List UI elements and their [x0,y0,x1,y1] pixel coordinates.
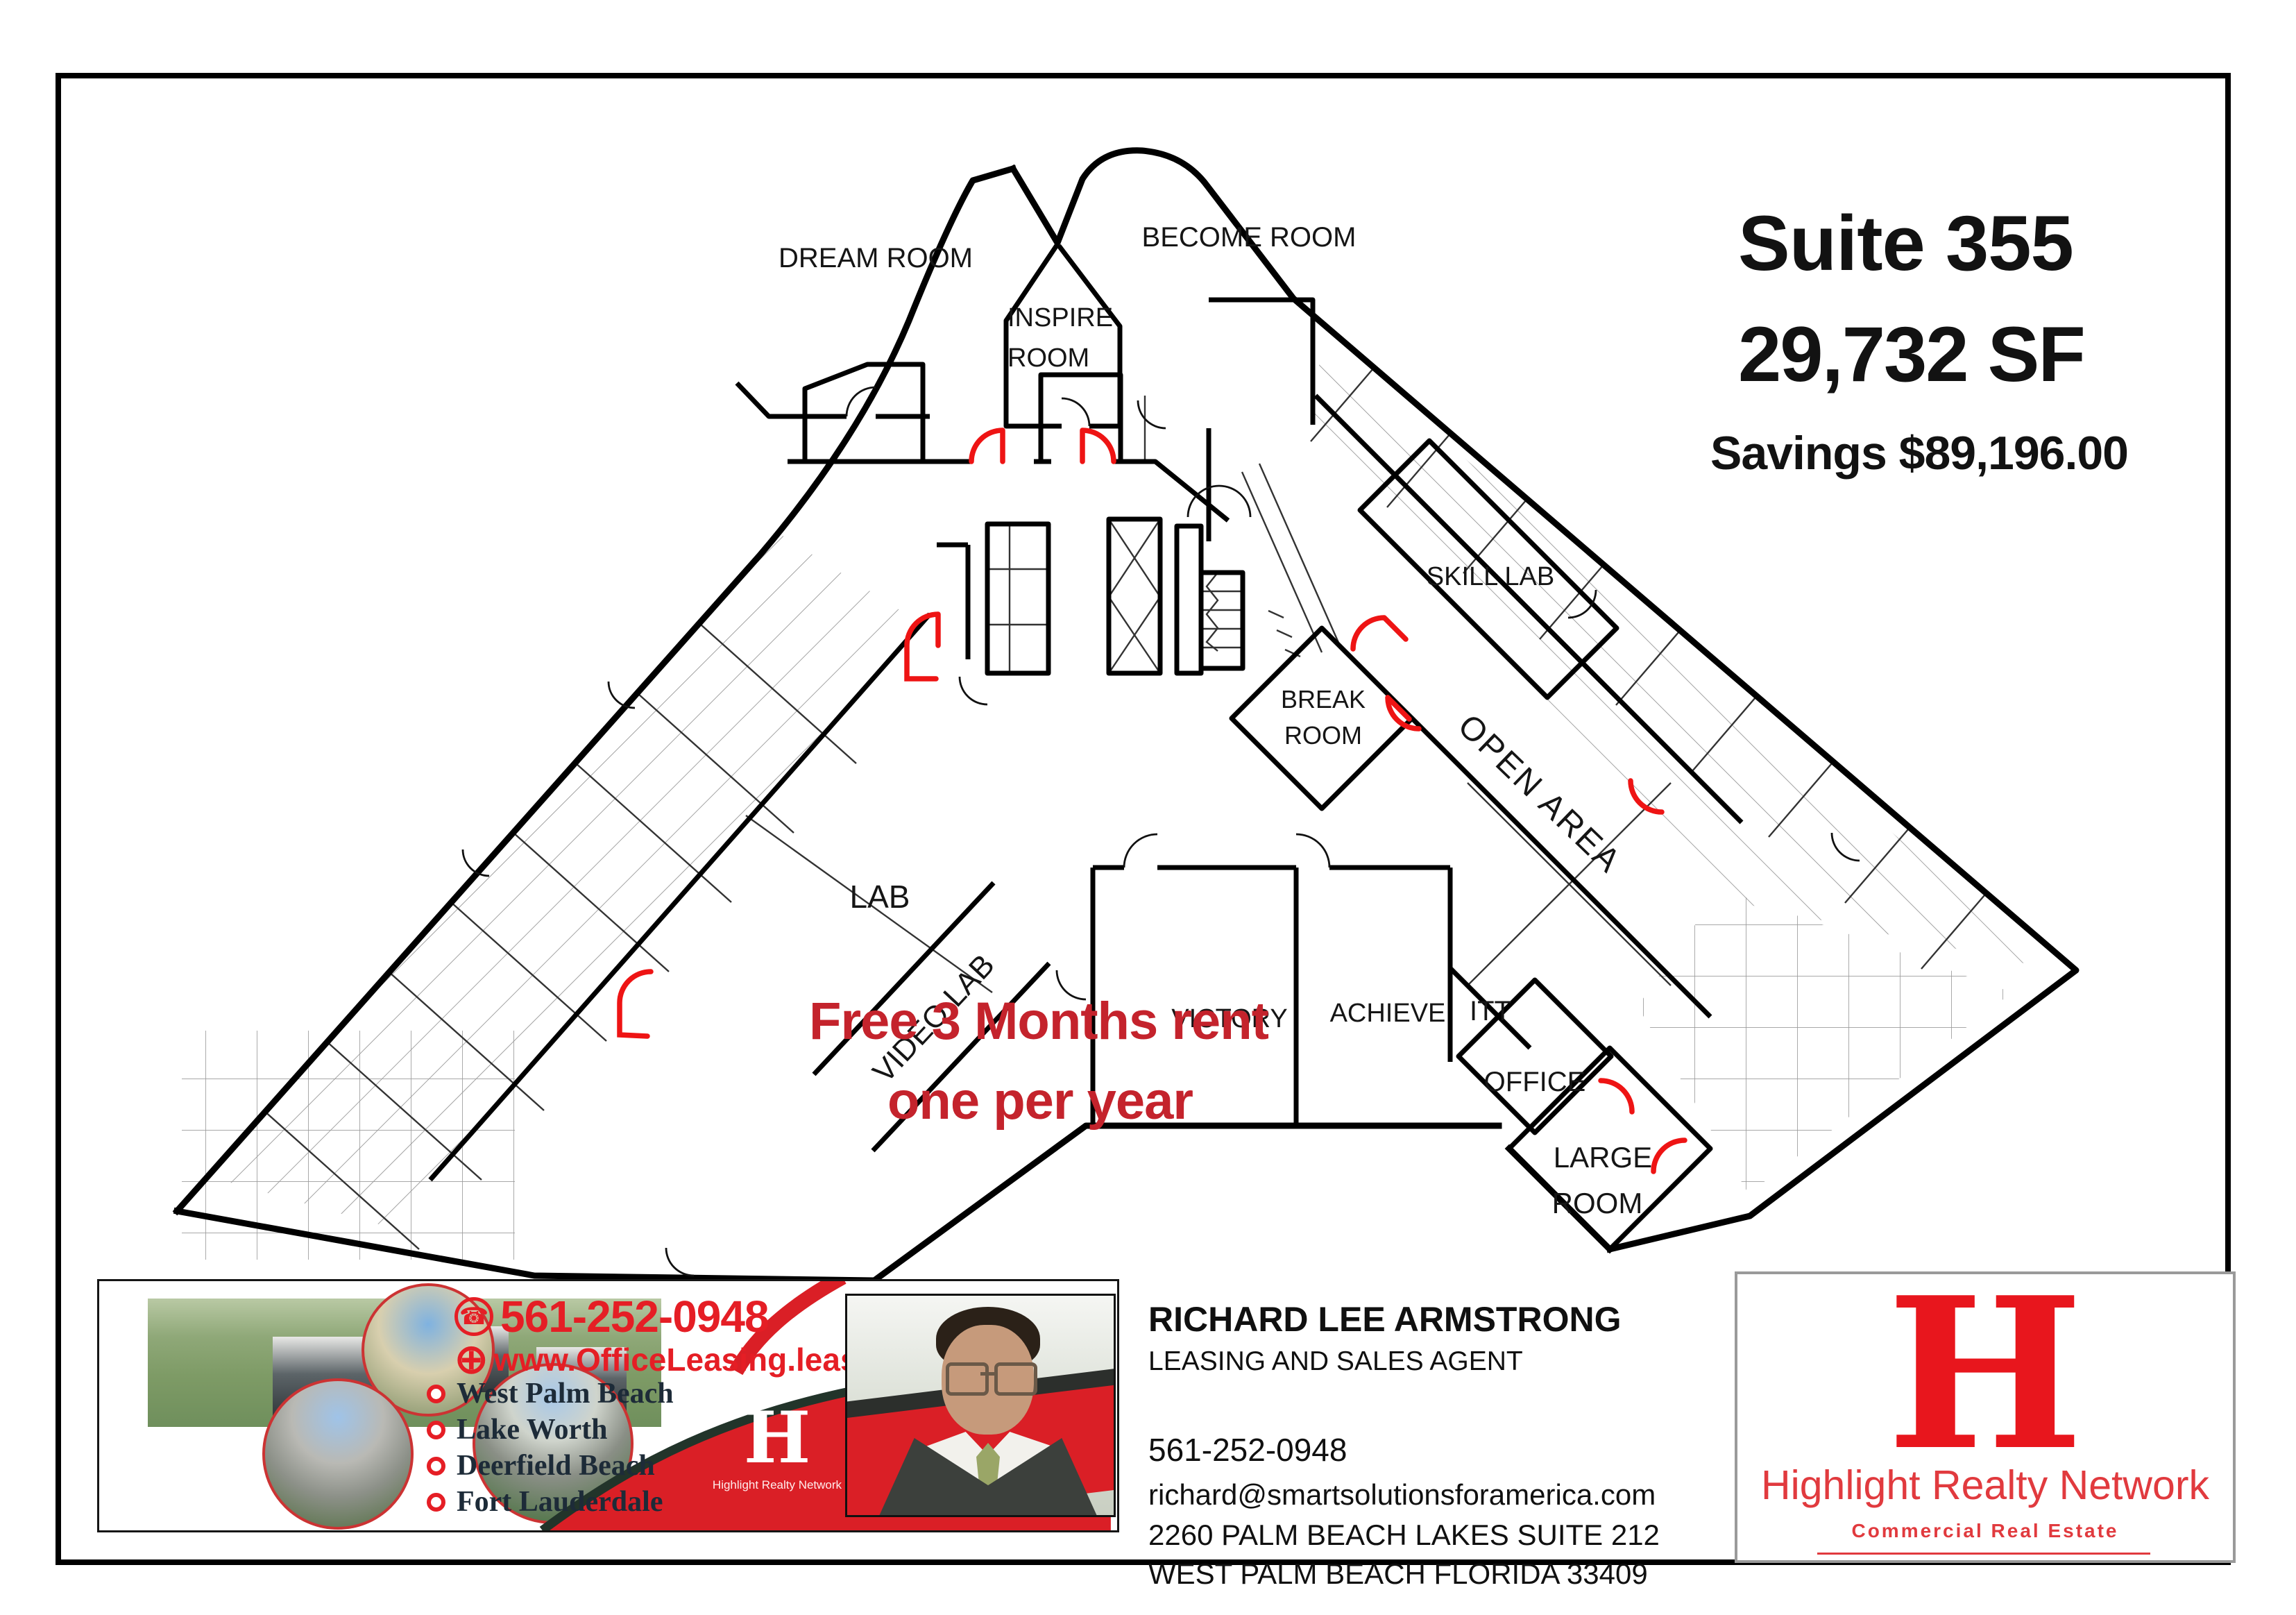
city-list: West Palm Beach Lake Worth Deerfield Bea… [427,1376,674,1520]
room-label-achieve: ACHIEVE [1330,999,1446,1028]
agent-email: richard@smartsolutionsforamerica.com [1148,1478,1660,1512]
room-label-large-1: LARGE [1554,1141,1652,1174]
room-label-dream: DREAM ROOM [779,243,973,273]
room-label-inspire-2: ROOM [1007,344,1089,373]
agent-address-line2: WEST PALM BEACH FLORIDA 33409 [1148,1557,1660,1591]
room-label-break-1: BREAK [1281,685,1366,713]
city-name: West Palm Beach [457,1377,674,1410]
room-label-skill: SKILL LAB [1427,562,1555,591]
agent-photo [845,1294,1116,1517]
flyer-page: DREAM ROOM BECOME ROOM INSPIRE ROOM SKIL… [0,0,2296,1615]
room-labels: DREAM ROOM BECOME ROOM INSPIRE ROOM SKIL… [779,222,1652,1219]
agent-contact-block: RICHARD LEE ARMSTRONG LEASING AND SALES … [1148,1299,1660,1591]
highlight-realty-box: H Highlight Realty Network Commercial Re… [1735,1271,2236,1563]
suite-savings: Savings $89,196.00 [1710,430,2128,477]
promo-line-1: Free 3 Months rent [809,991,1268,1051]
banner-h-caption: Highlight Realty Network [690,1478,864,1492]
city-bullet-icon [427,1457,445,1476]
highlight-name: Highlight Realty Network [1737,1462,2233,1509]
city-bullet-icon [427,1493,445,1512]
agent-title: LEASING AND SALES AGENT [1148,1346,1660,1377]
agent-glasses-bridge [980,1372,996,1376]
room-label-office: OFFICE [1484,1067,1586,1097]
room-label-become: BECOME ROOM [1142,222,1357,253]
agent-glasses-left [946,1362,989,1396]
room-label-lab: LAB [850,879,910,915]
agent-glasses-right [994,1362,1037,1396]
banner-h-logo: H [732,1403,822,1473]
globe-icon: ⊕ [454,1339,488,1380]
city-bullet-icon [427,1421,445,1439]
banner-website: www.OfficeLeasing.lease [494,1341,876,1378]
agent-name: RICHARD LEE ARMSTRONG [1148,1299,1660,1339]
city-name: Fort Lauderdale [457,1485,663,1519]
banner-phone-number: 561-252-0948 [500,1291,769,1342]
city-item: Fort Lauderdale [427,1484,674,1520]
city-item: Lake Worth [427,1412,674,1448]
city-item: Deerfield Beach [427,1448,674,1484]
room-label-break-2: ROOM [1284,721,1362,750]
city-bullet-icon [427,1385,445,1403]
suite-size: 29,732 SF [1738,316,2128,394]
banner-phone-row: ☎ 561-252-0948 [454,1291,769,1342]
city-name: Deerfield Beach [457,1449,655,1482]
highlight-tagline: Commercial Real Estate [1737,1520,2233,1542]
agent-address-line1: 2260 PALM BEACH LAKES SUITE 212 [1148,1519,1660,1552]
city-item: West Palm Beach [427,1376,674,1412]
promo-line-2: one per year [887,1071,1193,1131]
highlight-h-logo: H [1737,1278,2233,1470]
room-label-inspire-1: INSPIRE [1007,303,1113,332]
highlight-red-rule [1817,1553,2150,1555]
suite-info: Suite 355 29,732 SF Savings $89,196.00 [1738,205,2128,477]
leasing-banner: ☎ 561-252-0948 ⊕ www.OfficeLeasing.lease… [97,1279,1119,1532]
city-name: Lake Worth [457,1413,607,1446]
room-label-large-2: ROOM [1552,1187,1643,1219]
phone-icon: ☎ [454,1297,493,1336]
room-label-itt: ITT [1470,996,1511,1026]
banner-website-row: ⊕ www.OfficeLeasing.lease [454,1339,876,1380]
agent-phone: 561-252-0948 [1148,1431,1660,1469]
suite-number: Suite 355 [1738,205,2128,282]
